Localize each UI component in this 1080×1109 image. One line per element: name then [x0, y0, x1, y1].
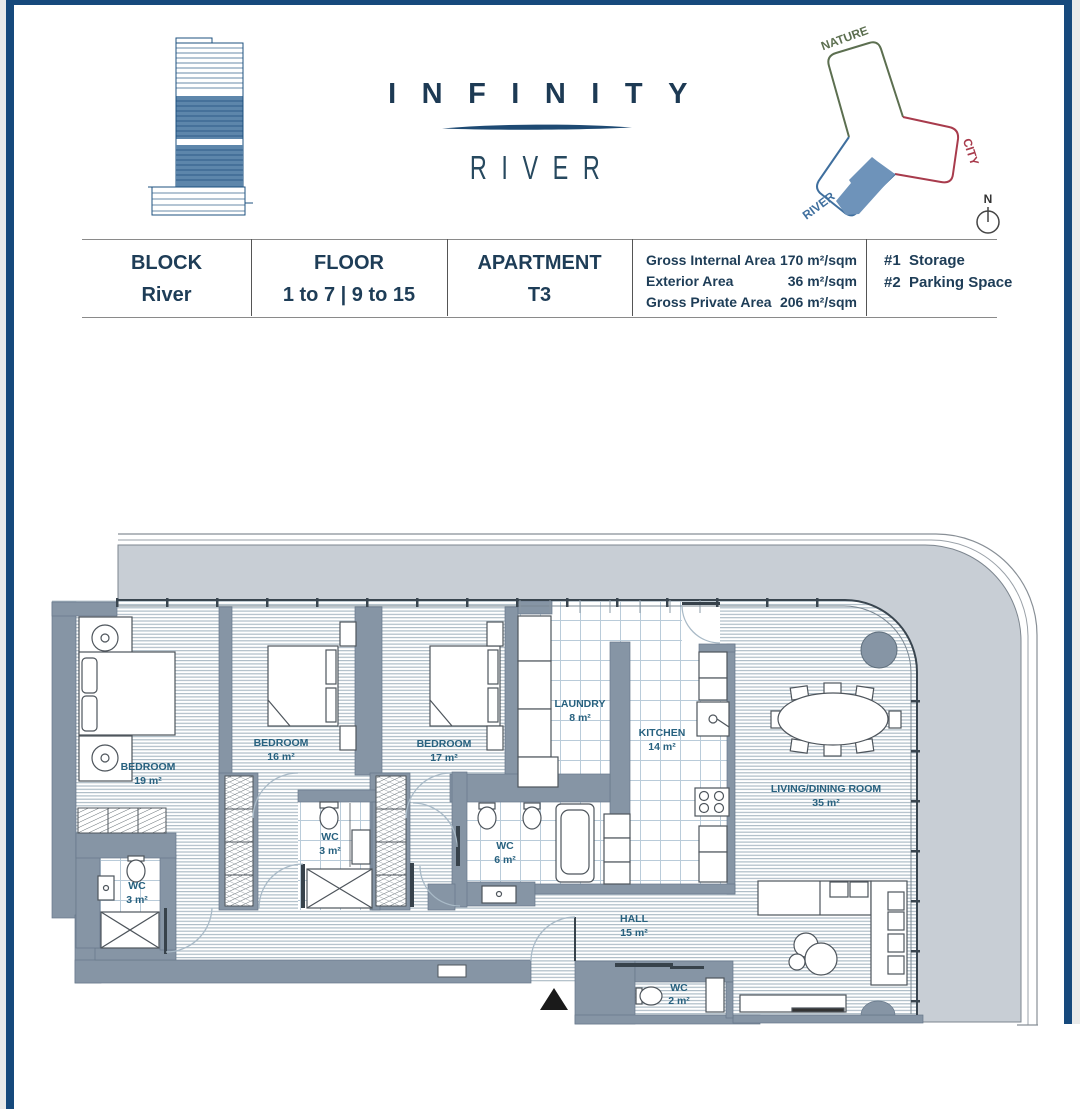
svg-text:WC: WC [670, 982, 688, 994]
svg-text:WC: WC [321, 831, 339, 843]
svg-text:3 m²: 3 m² [126, 894, 148, 906]
svg-text:BEDROOM: BEDROOM [254, 737, 309, 749]
svg-text:8 m²: 8 m² [569, 712, 591, 724]
svg-text:LIVING/DINING ROOM: LIVING/DINING ROOM [771, 783, 882, 795]
svg-text:14 m²: 14 m² [648, 741, 676, 753]
svg-text:BEDROOM: BEDROOM [417, 738, 472, 750]
svg-text:6 m²: 6 m² [494, 854, 516, 866]
svg-text:35 m²: 35 m² [812, 797, 840, 809]
svg-text:15 m²: 15 m² [620, 927, 648, 939]
svg-text:17 m²: 17 m² [430, 752, 458, 764]
svg-text:3 m²: 3 m² [319, 845, 341, 857]
svg-text:WC: WC [128, 880, 146, 892]
svg-text:19 m²: 19 m² [134, 775, 162, 787]
svg-text:LAUNDRY: LAUNDRY [555, 698, 606, 710]
svg-text:KITCHEN: KITCHEN [639, 727, 686, 739]
svg-text:WC: WC [496, 840, 514, 852]
svg-text:16 m²: 16 m² [267, 751, 295, 763]
svg-text:HALL: HALL [620, 913, 649, 925]
svg-text:2 m²: 2 m² [668, 995, 690, 1007]
svg-text:BEDROOM: BEDROOM [121, 761, 176, 773]
